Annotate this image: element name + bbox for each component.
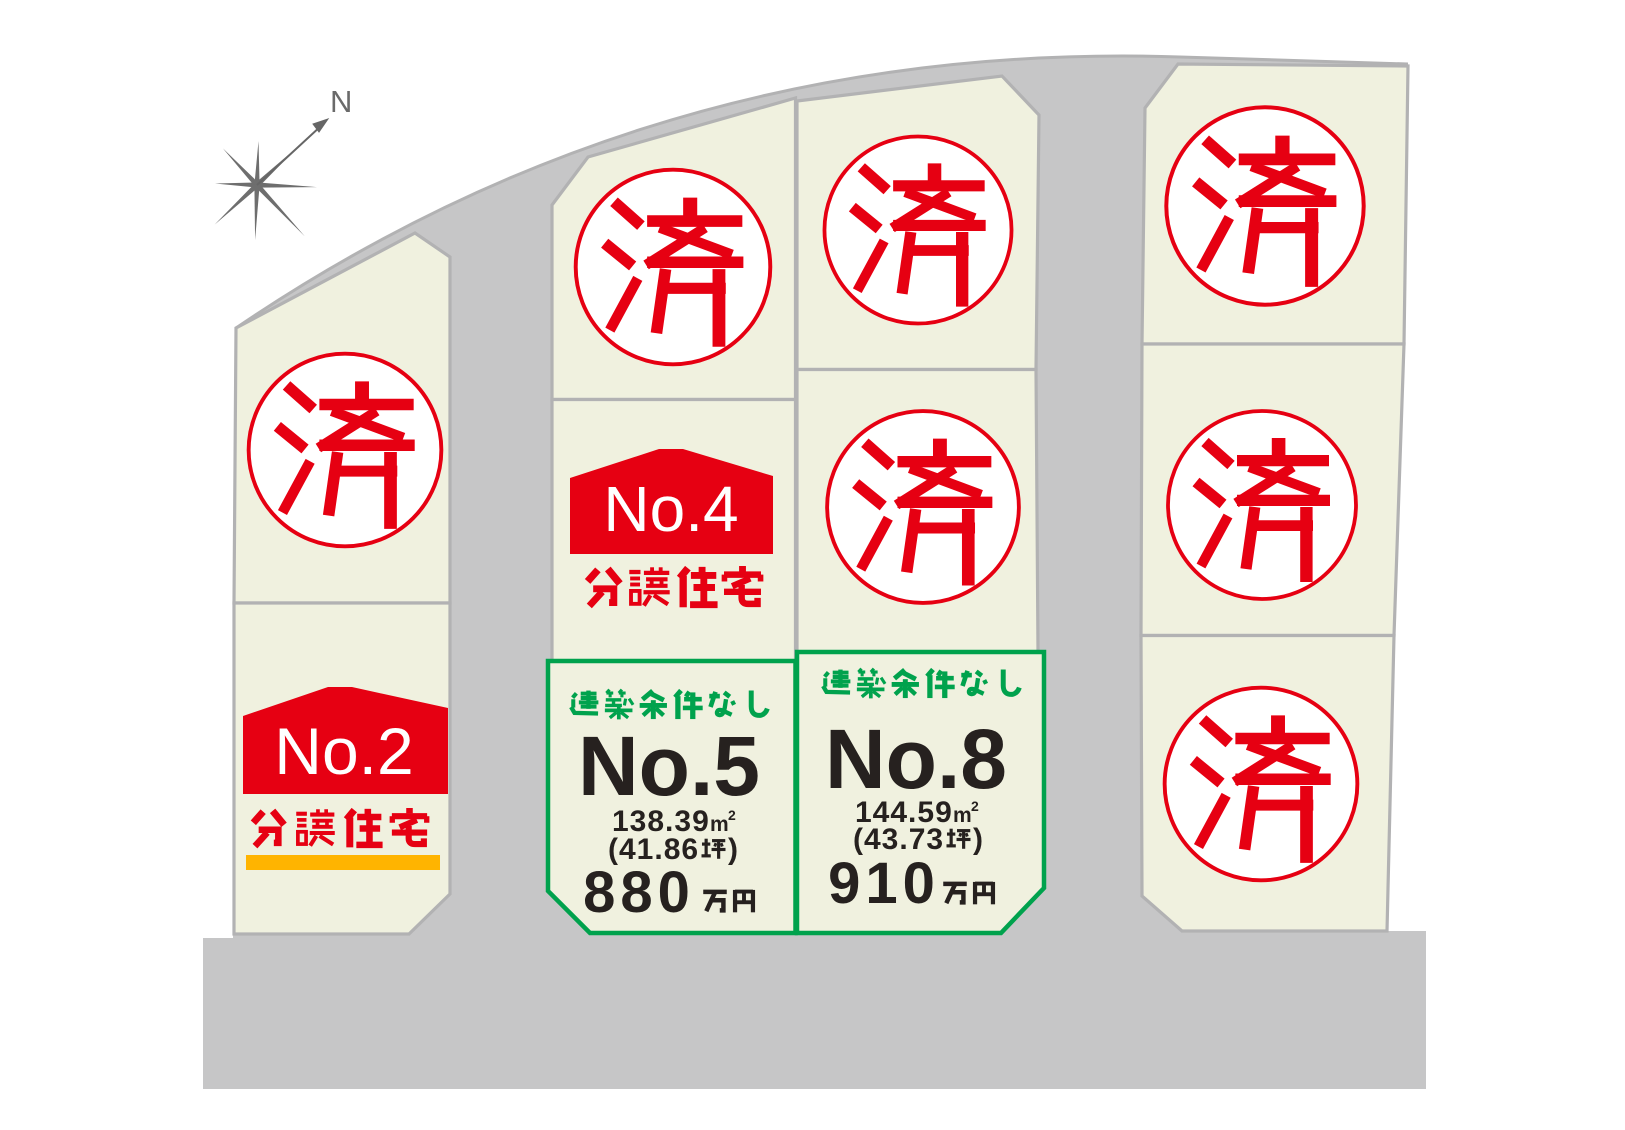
- svg-text:880: 880: [583, 860, 695, 925]
- svg-text:m: m: [953, 804, 972, 827]
- svg-text:m: m: [710, 813, 729, 836]
- svg-text:No.4: No.4: [603, 473, 738, 545]
- svg-text:): ): [973, 823, 983, 856]
- svg-text:N: N: [330, 84, 352, 119]
- svg-text:): ): [728, 833, 738, 866]
- svg-text:No.8: No.8: [825, 712, 1007, 806]
- svg-text:2: 2: [971, 798, 979, 814]
- svg-text:2: 2: [728, 807, 736, 823]
- svg-text:No.5: No.5: [578, 719, 760, 813]
- svg-text:910: 910: [828, 851, 940, 916]
- svg-text:No.2: No.2: [274, 714, 413, 788]
